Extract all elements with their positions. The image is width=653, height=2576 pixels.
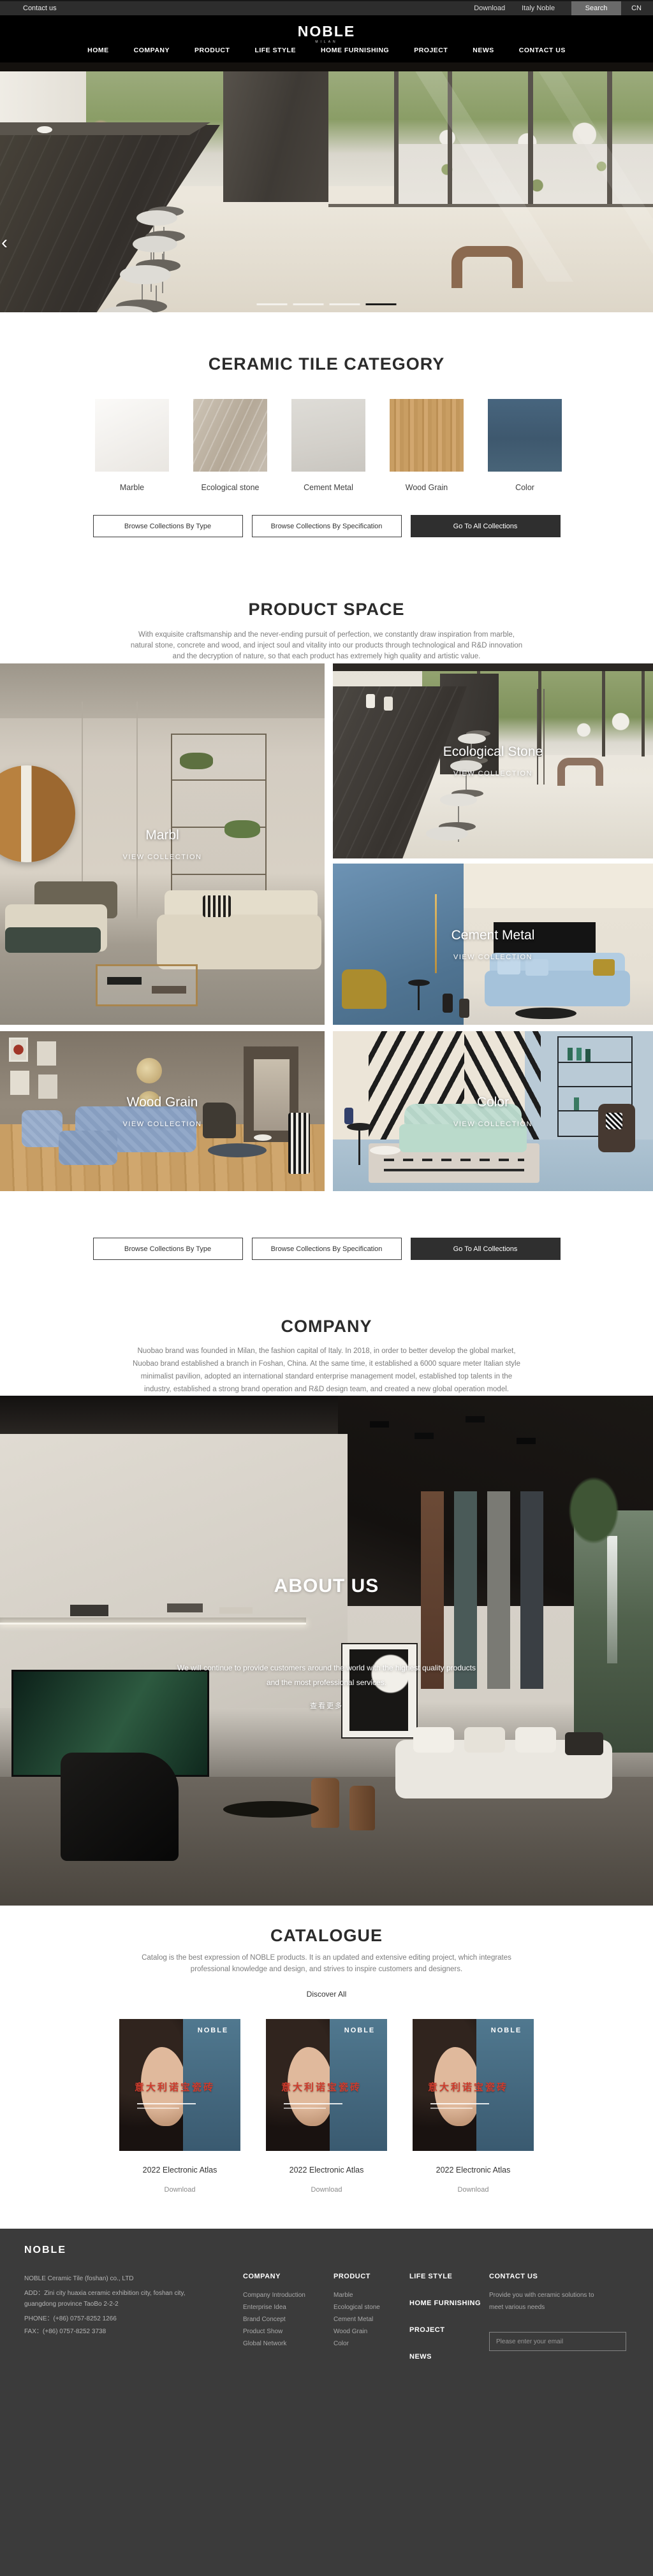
hero-pagination <box>257 303 397 305</box>
company-paragraph-line-2: Nuobao brand established a branch in Fos… <box>0 1359 653 1370</box>
topbar: Contact us Download Italy Noble Search C… <box>0 0 653 15</box>
footer-link-company-introduction[interactable]: Company Introduction <box>243 2289 305 2301</box>
cover-brand: NOBLE <box>481 2027 531 2034</box>
about-plant <box>565 1472 622 1549</box>
cover-cn-title: 意大利诺宝瓷砖 <box>135 2080 237 2094</box>
card-name: Color <box>477 1095 509 1110</box>
category-buttons: Browse Collections By Type Browse Collec… <box>0 515 653 537</box>
catalogue-title: CATALOGUE <box>0 1926 653 1946</box>
browse-by-type-button[interactable]: Browse Collections By Type <box>93 1238 243 1260</box>
about-wood-stool-2 <box>349 1786 375 1830</box>
browse-by-type-button[interactable]: Browse Collections By Type <box>93 515 243 537</box>
catalogue-cover-2[interactable]: NOBLE 意大利诺宝瓷砖 <box>266 2019 387 2151</box>
about-paragraph-line-2: and the most professional services. <box>0 1678 653 1687</box>
hero-stool-1 <box>136 210 177 226</box>
about-spotlights <box>370 1421 389 1428</box>
footer-link-brand-concept[interactable]: Brand Concept <box>243 2313 286 2326</box>
cover-caption-bar-2 <box>284 2108 326 2109</box>
about-black-coffee-table <box>223 1801 319 1818</box>
tile-cement-metal[interactable]: Cement Metal <box>291 399 365 492</box>
hero-stool-3 <box>120 265 171 284</box>
cover-caption-bar-2 <box>430 2108 473 2109</box>
nav-contact-us[interactable]: CONTACT US <box>519 47 566 54</box>
catalogue-cover-3[interactable]: NOBLE 意大利诺宝瓷砖 <box>413 2019 534 2151</box>
space-card-cement-metal[interactable]: Cement Metal VIEW COLLECTION <box>333 864 653 1025</box>
about-sofa-cushions <box>413 1727 454 1753</box>
about-view-more-link[interactable]: 查看更多 <box>0 1700 653 1711</box>
cement-metal-swatch <box>291 399 365 472</box>
catalogue-item-label-2: 2022 Electronic Atlas <box>266 2166 387 2174</box>
marble-card-overlay: Marbl VIEW COLLECTION <box>0 663 325 1025</box>
footer-link-wood-grain[interactable]: Wood Grain <box>334 2326 367 2338</box>
tile-marble[interactable]: Marble <box>95 399 169 492</box>
hero-glass-reflection <box>344 71 653 282</box>
discover-all-link[interactable]: Discover All <box>0 1990 653 1999</box>
hero-counter-bowl <box>37 126 52 133</box>
catalogue-download-link-2[interactable]: Download <box>266 2186 387 2194</box>
search-button[interactable]: Search <box>571 1 621 15</box>
footer-fax: FAX：(+86) 0757-8252 3738 <box>24 2326 196 2337</box>
hero-slide-dash-4-active[interactable] <box>366 303 397 305</box>
marble-swatch <box>95 399 169 472</box>
hero-ceiling <box>0 62 653 71</box>
space-card-color[interactable]: Color VIEW COLLECTION <box>333 1031 653 1191</box>
product-space-title: PRODUCT SPACE <box>0 600 653 619</box>
nav-company[interactable]: COMPANY <box>134 47 170 54</box>
browse-by-specification-button[interactable]: Browse Collections By Specification <box>252 1238 402 1260</box>
view-collection-link[interactable]: VIEW COLLECTION <box>453 953 532 961</box>
footer-phone: PHONE：(+86) 0757-8252 1266 <box>24 2313 196 2324</box>
about-waterfall <box>607 1536 617 1663</box>
footer-logo[interactable]: NOBLE <box>24 2245 66 2256</box>
cover-caption-bar-1 <box>284 2103 342 2104</box>
cover-cn-title: 意大利诺宝瓷砖 <box>428 2080 530 2094</box>
ecological-stone-swatch <box>193 399 267 472</box>
eco-card-overlay: Ecological Stone VIEW COLLECTION <box>333 663 653 858</box>
about-title-wrap: ABOUT US <box>0 1575 653 1597</box>
product-space-buttons: Browse Collections By Type Browse Collec… <box>0 1238 653 1260</box>
hero-slide-dash-1[interactable] <box>257 303 288 305</box>
product-space-paragraph-line-3: and the decryption of nature, so that ea… <box>0 651 653 662</box>
noble-homepage: Contact us Download Italy Noble Search C… <box>0 0 653 2576</box>
category-title: CERAMIC TILE CATEGORY <box>0 354 653 374</box>
tile-label: Color <box>488 483 562 492</box>
cover-cn-title: 意大利诺宝瓷砖 <box>281 2080 383 2094</box>
footer-link-color[interactable]: Color <box>334 2338 349 2350</box>
catalogue-download-link-1[interactable]: Download <box>119 2186 240 2194</box>
footer-link-marble[interactable]: Marble <box>334 2289 353 2301</box>
footer-col-product-title[interactable]: PRODUCT <box>334 2273 371 2280</box>
footer-link-cement-metal[interactable]: Cement Metal <box>334 2313 373 2326</box>
main-nav: HOME COMPANY PRODUCT LIFE STYLE HOME FUR… <box>0 47 653 54</box>
tile-ecological-stone[interactable]: Ecological stone <box>193 399 267 492</box>
cover-brand: NOBLE <box>335 2027 385 2034</box>
hero-bar-counter <box>0 125 220 312</box>
cement-card-overlay: Cement Metal VIEW COLLECTION <box>333 864 653 1025</box>
download-link[interactable]: Download <box>474 4 505 12</box>
hero-counter-top <box>0 122 210 135</box>
about-wood-stool-1 <box>311 1778 339 1828</box>
view-collection-link[interactable]: VIEW COLLECTION <box>123 1120 202 1128</box>
noble-logo[interactable]: NOBLE <box>0 23 653 40</box>
about-us-banner[interactable]: ABOUT US We will continue to provide cus… <box>0 1396 653 1906</box>
hero-stool-2 <box>133 236 177 252</box>
footer-link-global-network[interactable]: Global Network <box>243 2338 286 2350</box>
nav-project[interactable]: PROJECT <box>414 47 448 54</box>
company-title: COMPANY <box>0 1317 653 1336</box>
footer: NOBLE NOBLE Ceramic Tile (foshan) co., L… <box>0 2229 653 2576</box>
wood-card-overlay: Wood Grain VIEW COLLECTION <box>0 1031 325 1191</box>
company-paragraph-line-3: minimalist pavilion, adopted an internat… <box>0 1371 653 1382</box>
card-name: Cement Metal <box>451 928 535 943</box>
tile-label: Marble <box>95 483 169 492</box>
footer-link-ecological-stone[interactable]: Ecological stone <box>334 2301 380 2313</box>
footer-link-home-furnishing[interactable]: HOME FURNISHING <box>409 2299 481 2307</box>
language-toggle[interactable]: CN <box>631 4 642 12</box>
hero-slide-dash-3[interactable] <box>330 303 360 305</box>
hero-stone-chimney <box>223 71 328 202</box>
company-paragraph-line-1: Nuobao brand was founded in Milan, the f… <box>0 1346 653 1357</box>
noble-logo-subtitle: MILAN <box>0 40 653 44</box>
footer-company-name: NOBLE Ceramic Tile (foshan) co., LTD <box>24 2273 196 2284</box>
footer-link-product-show[interactable]: Product Show <box>243 2326 282 2338</box>
nav-product[interactable]: PRODUCT <box>194 47 230 54</box>
topbar-right: Download Italy Noble Search CN <box>474 1 653 15</box>
go-to-all-collections-button[interactable]: Go To All Collections <box>411 1238 561 1260</box>
wood-grain-swatch <box>390 399 464 472</box>
about-title: ABOUT US <box>274 1575 379 1596</box>
footer-link-project[interactable]: PROJECT <box>409 2326 444 2334</box>
cover-brand: NOBLE <box>188 2027 238 2034</box>
view-collection-link[interactable]: VIEW COLLECTION <box>453 1120 532 1128</box>
footer-address: ADD：Zini city huaxia ceramic exhibition … <box>24 2288 191 2310</box>
card-name: Wood Grain <box>127 1095 198 1110</box>
footer-contact-title[interactable]: CONTACT US <box>489 2273 538 2280</box>
footer-link-life-style[interactable]: LIFE STYLE <box>409 2273 452 2280</box>
catalogue-download-link-3[interactable]: Download <box>413 2186 534 2194</box>
tile-color[interactable]: Color <box>488 399 562 492</box>
card-name: Ecological Stone <box>443 744 543 760</box>
nav-life-style[interactable]: LIFE STYLE <box>254 47 296 54</box>
browse-by-specification-button[interactable]: Browse Collections By Specification <box>252 515 402 537</box>
hero-prev-arrow[interactable]: ‹ <box>1 233 8 252</box>
cover-caption-bar-1 <box>137 2103 196 2104</box>
color-card-overlay: Color VIEW COLLECTION <box>333 1031 653 1191</box>
about-shelf <box>0 1617 306 1623</box>
about-shelf-items <box>70 1605 108 1616</box>
email-input[interactable] <box>489 2332 626 2351</box>
nav-home-furnishing[interactable]: HOME FURNISHING <box>321 47 389 54</box>
hero-slide-dash-2[interactable] <box>293 303 324 305</box>
hero-carousel[interactable]: ‹ <box>0 62 653 312</box>
cover-caption-bar-2 <box>137 2108 179 2109</box>
tile-label: Cement Metal <box>291 483 365 492</box>
company-paragraph-line-4: industry, established a strong brand ope… <box>0 1384 653 1395</box>
color-swatch <box>488 399 562 472</box>
view-collection-link[interactable]: VIEW COLLECTION <box>123 853 202 861</box>
about-shelf-led <box>0 1623 306 1624</box>
catalogue-item-label-3: 2022 Electronic Atlas <box>413 2166 534 2174</box>
catalogue-item-label-1: 2022 Electronic Atlas <box>119 2166 240 2174</box>
card-name: Marbl <box>145 828 179 843</box>
about-black-chair <box>61 1753 179 1861</box>
product-space-paragraph-line-1: With exquisite craftsmanship and the nev… <box>0 630 653 640</box>
italy-noble-link[interactable]: Italy Noble <box>522 4 555 12</box>
space-card-marble[interactable]: Marbl VIEW COLLECTION <box>0 663 325 1025</box>
space-card-ecological-stone[interactable]: Ecological Stone VIEW COLLECTION <box>333 663 653 858</box>
catalogue-cover-1[interactable]: NOBLE 意大利诺宝瓷砖 <box>119 2019 240 2151</box>
nav-home[interactable]: HOME <box>87 47 109 54</box>
space-card-wood-grain[interactable]: Wood Grain VIEW COLLECTION <box>0 1031 325 1191</box>
tile-label: Ecological stone <box>193 483 267 492</box>
footer-link-news[interactable]: NEWS <box>409 2353 432 2361</box>
about-art-blob <box>349 1649 408 1731</box>
footer-contact-desc: Provide you with ceramic solutions to me… <box>489 2289 594 2313</box>
product-space-paragraph-line-2: natural stone, concrete and wood, and in… <box>0 640 653 651</box>
hero-stool-4 <box>97 306 156 312</box>
nav-news[interactable]: NEWS <box>473 47 494 54</box>
about-paragraph-line-1: We will continue to provide customers ar… <box>0 1663 653 1672</box>
catalogue-paragraph-line-2: professional knowledge and design, and s… <box>0 1964 653 1975</box>
footer-col-company-title[interactable]: COMPANY <box>243 2273 281 2280</box>
go-to-all-collections-button[interactable]: Go To All Collections <box>411 515 561 537</box>
cover-caption-bar-1 <box>430 2103 489 2104</box>
site-header: NOBLE MILAN HOME COMPANY PRODUCT LIFE ST… <box>0 15 653 62</box>
tile-wood-grain[interactable]: Wood Grain <box>390 399 464 492</box>
footer-link-enterprise-idea[interactable]: Enterprise Idea <box>243 2301 286 2313</box>
view-collection-link[interactable]: VIEW COLLECTION <box>453 770 532 778</box>
contact-us-link[interactable]: Contact us <box>23 4 57 12</box>
tile-label: Wood Grain <box>390 483 464 492</box>
catalogue-paragraph-line-1: Catalog is the best expression of NOBLE … <box>0 1953 653 1964</box>
